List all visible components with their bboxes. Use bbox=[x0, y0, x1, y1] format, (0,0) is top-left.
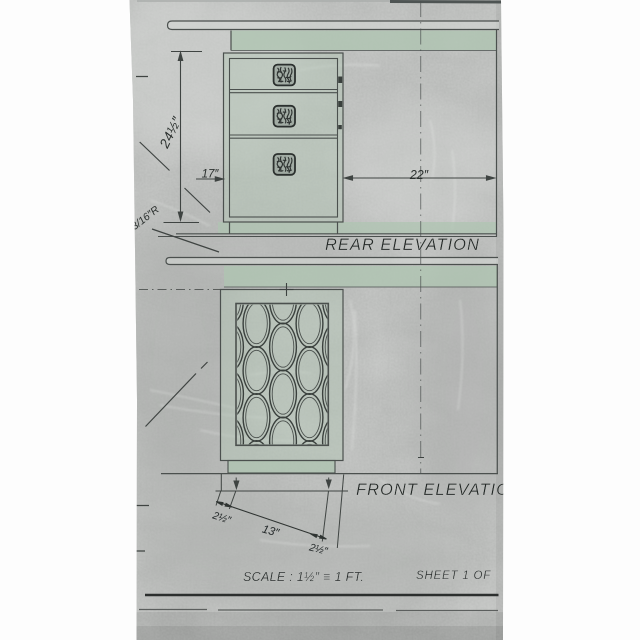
svg-text:SHEET 1 OF: SHEET 1 OF bbox=[416, 570, 491, 582]
svg-text:17″: 17″ bbox=[202, 169, 220, 181]
svg-text:SCALE : 1½″ ≡ 1 FT.: SCALE : 1½″ ≡ 1 FT. bbox=[243, 570, 364, 584]
svg-text:22″: 22″ bbox=[409, 168, 429, 182]
svg-text:FRONT ELEVATION: FRONT ELEVATION bbox=[356, 481, 523, 499]
svg-text:REAR ELEVATION: REAR ELEVATION bbox=[325, 236, 480, 254]
